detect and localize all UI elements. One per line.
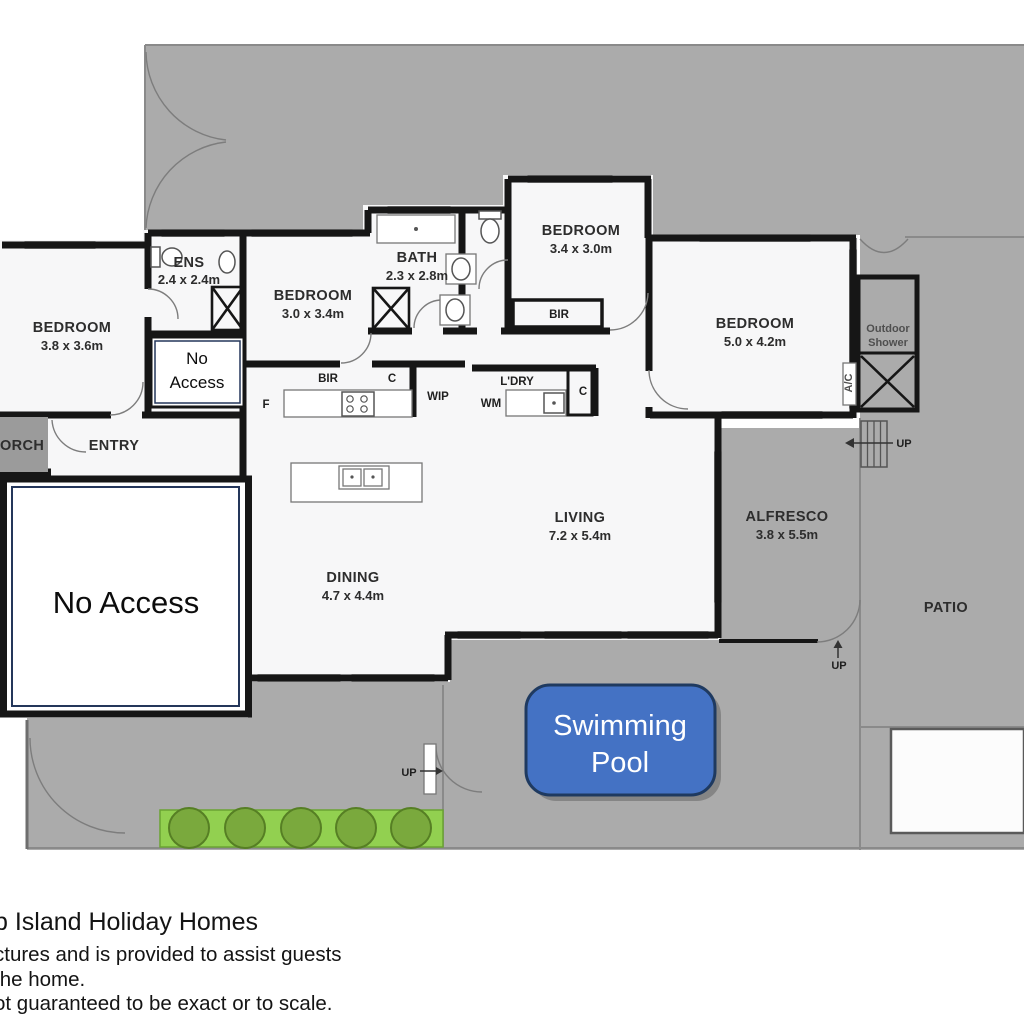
wc-toilet-tank bbox=[479, 211, 501, 219]
no-access-small-box: No Access bbox=[151, 337, 244, 407]
outdoor-shower: Outdoor Shower bbox=[858, 277, 917, 410]
no-access-small-line1: No bbox=[186, 349, 208, 368]
wc-toilet-bowl bbox=[481, 219, 499, 243]
bir-bedroom-top-label: BIR bbox=[549, 309, 570, 321]
swimming-pool: Swimming Pool bbox=[526, 685, 721, 801]
bush-4 bbox=[336, 808, 376, 848]
ens-label: ENS bbox=[173, 255, 204, 271]
bath-label: BATH bbox=[397, 250, 438, 266]
bedroom-left-label: BEDROOM bbox=[33, 320, 112, 336]
living-label: LIVING bbox=[555, 510, 606, 526]
floor-plan-page: No Access No Access Outdoor Shower A/C U… bbox=[0, 0, 1024, 1024]
no-access-small-line2: Access bbox=[170, 373, 225, 392]
ac-label: A/C bbox=[843, 373, 855, 392]
bush-2 bbox=[225, 808, 265, 848]
closet-laundry-label: C bbox=[579, 386, 587, 398]
bush-3 bbox=[281, 808, 321, 848]
bedroom-right-dims: 5.0 x 4.2m bbox=[724, 334, 786, 349]
bedroom-mid-label: BEDROOM bbox=[274, 288, 353, 304]
living-dims: 7.2 x 5.4m bbox=[549, 528, 611, 543]
ac-unit: A/C bbox=[843, 363, 856, 405]
dining-dims: 4.7 x 4.4m bbox=[322, 588, 384, 603]
bedroom-left-dims: 3.8 x 3.6m bbox=[41, 338, 103, 353]
floor-plan-canvas: No Access No Access Outdoor Shower A/C U… bbox=[0, 0, 1024, 1024]
ens-dims: 2.4 x 2.4m bbox=[158, 272, 220, 287]
ens-basin bbox=[219, 251, 235, 273]
bush-1 bbox=[169, 808, 209, 848]
no-access-large-label: No Access bbox=[53, 585, 199, 620]
pool-gate-jamb bbox=[424, 744, 436, 794]
laundry-label: L'DRY bbox=[500, 376, 534, 388]
bush-5 bbox=[391, 808, 431, 848]
footer-title: p Island Holiday Homes bbox=[0, 908, 258, 936]
outdoor-shower-label1: Outdoor bbox=[866, 323, 910, 335]
laundry-sink-drain bbox=[552, 401, 556, 405]
floor-bedroom-top bbox=[503, 175, 653, 337]
sauna-box bbox=[891, 729, 1024, 833]
footer-line2: the home. bbox=[0, 968, 85, 991]
wm-label: WM bbox=[481, 398, 501, 410]
closet-hall-label: C bbox=[388, 373, 396, 385]
cooktop bbox=[342, 392, 374, 416]
wip-label: WIP bbox=[427, 391, 449, 403]
up-pool-label: UP bbox=[401, 767, 416, 779]
bedroom-mid-dims: 3.0 x 3.4m bbox=[282, 306, 344, 321]
porch-label: ORCH bbox=[0, 438, 44, 454]
sauna bbox=[891, 729, 1024, 833]
basin-1 bbox=[452, 258, 470, 280]
up-stairs-label: UP bbox=[896, 438, 911, 450]
alfresco-label: ALFRESCO bbox=[746, 509, 829, 525]
patio-label: PATIO bbox=[924, 600, 968, 616]
pool-label-line1: Swimming bbox=[553, 710, 687, 742]
footer-line3: ot guaranteed to be exact or to scale. bbox=[0, 992, 332, 1015]
bedroom-top-label: BEDROOM bbox=[542, 223, 621, 239]
alfresco-dims: 3.8 x 5.5m bbox=[756, 527, 818, 542]
dining-label: DINING bbox=[326, 570, 379, 586]
floor-entry bbox=[40, 413, 250, 482]
bedroom-top-dims: 3.4 x 3.0m bbox=[550, 241, 612, 256]
bath-dims: 2.3 x 2.8m bbox=[386, 268, 448, 283]
island-sink-drain-2 bbox=[371, 475, 374, 478]
basin-2 bbox=[446, 299, 464, 321]
up-alfresco-label: UP bbox=[831, 660, 846, 672]
garden-bed bbox=[160, 808, 443, 848]
bir-hall-label: BIR bbox=[318, 373, 339, 385]
footer: p Island Holiday Homes ctures and is pro… bbox=[0, 908, 342, 1015]
floor-living bbox=[240, 405, 720, 640]
island-sink-drain-1 bbox=[350, 475, 353, 478]
no-access-large-box: No Access bbox=[4, 479, 249, 714]
pool-label-line2: Pool bbox=[591, 747, 649, 779]
bath-vanity-drain bbox=[414, 227, 418, 231]
entry-label: ENTRY bbox=[89, 438, 140, 454]
footer-line1: ctures and is provided to assist guests bbox=[0, 943, 342, 966]
bedroom-right-label: BEDROOM bbox=[716, 316, 795, 332]
ens-toilet-tank bbox=[151, 247, 160, 267]
outdoor-shower-label2: Shower bbox=[868, 337, 908, 349]
fridge-label: F bbox=[262, 399, 269, 411]
